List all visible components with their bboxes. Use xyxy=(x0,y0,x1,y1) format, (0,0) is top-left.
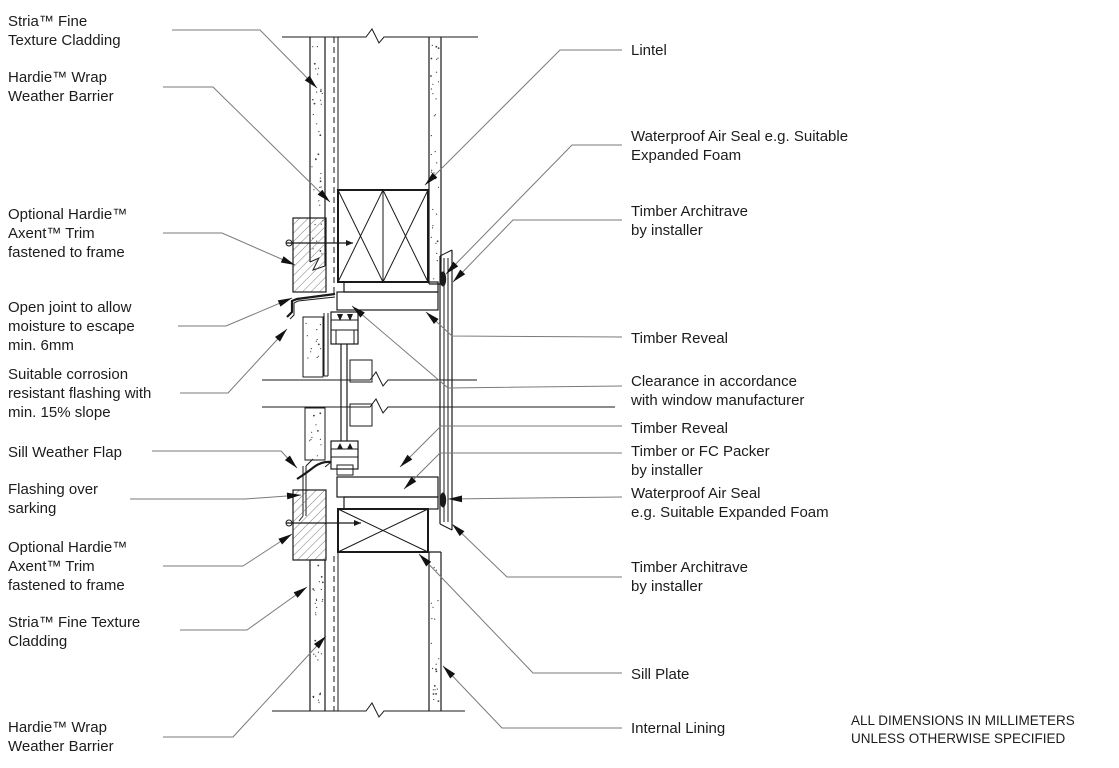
label-hardie-wrap-bottom: Hardie™ Wrap Weather Barrier xyxy=(8,718,228,756)
axent-trim-bottom xyxy=(286,490,361,560)
label-lintel: Lintel xyxy=(631,41,911,60)
detail-drawing-page: Stria™ Fine Texture Cladding Hardie™ Wra… xyxy=(0,0,1119,768)
label-hardie-wrap-top: Hardie™ Wrap Weather Barrier xyxy=(8,68,228,106)
label-sill-plate: Sill Plate xyxy=(631,665,911,684)
leader-fc-packer xyxy=(404,453,622,489)
timber-architrave-strip xyxy=(440,250,452,530)
label-open-joint: Open joint to allow moisture to escape m… xyxy=(8,298,228,355)
glazing-unit xyxy=(341,344,347,441)
head-fc-board xyxy=(303,317,323,377)
window-head-frame xyxy=(331,312,358,344)
upper-wall xyxy=(310,37,441,296)
sill-plate xyxy=(338,509,428,552)
sill-timber-reveal xyxy=(337,477,438,497)
leader-air-seal-sill xyxy=(448,497,622,499)
head-timber-reveal xyxy=(337,292,438,310)
leader-lintel xyxy=(425,50,622,185)
internal-lining-bottom xyxy=(429,552,441,711)
label-stria-cladding-bottom: Stria™ Fine Texture Cladding xyxy=(8,613,228,651)
sill-air-seal xyxy=(440,493,446,508)
break-lines xyxy=(262,29,615,717)
leader-timber-reveal-sill xyxy=(400,426,622,467)
label-timber-reveal-head: Timber Reveal xyxy=(631,329,911,348)
break-line-mid-lower xyxy=(262,399,615,413)
label-air-seal-head: Waterproof Air Seal e.g. Suitable Expand… xyxy=(631,127,911,165)
label-axent-trim-bottom: Optional Hardie™ Axent™ Trim fastened to… xyxy=(8,538,228,595)
sill-weather-flap xyxy=(297,462,331,479)
leader-internal-lining xyxy=(443,666,622,728)
label-stria-cladding-top: Stria™ Fine Texture Cladding xyxy=(8,12,228,50)
internal-lining-top xyxy=(429,37,441,284)
lintel xyxy=(338,190,428,282)
head-packer xyxy=(344,282,438,292)
label-fc-packer: Timber or FC Packer by installer xyxy=(631,442,911,480)
leader-air-seal-head xyxy=(446,145,622,274)
break-line-top xyxy=(282,29,478,43)
glazing-stop-head xyxy=(350,360,372,382)
break-line-mid-upper xyxy=(262,372,477,386)
break-line-bottom xyxy=(272,703,465,717)
leader-timber-reveal-head xyxy=(426,312,622,337)
leader-clearance xyxy=(352,306,622,388)
label-corrosion-flashing: Suitable corrosion resistant flashing wi… xyxy=(8,365,238,422)
axent-trim-top xyxy=(286,218,353,292)
label-sill-weather-flap: Sill Weather Flap xyxy=(8,443,228,462)
label-axent-trim-top: Optional Hardie™ Axent™ Trim fastened to… xyxy=(8,205,228,262)
lower-wall xyxy=(310,552,441,711)
window-sill-frame xyxy=(325,441,358,475)
label-flashing-over-sarking: Flashing over sarking xyxy=(8,480,228,518)
head-air-seal xyxy=(440,272,446,287)
label-architrave-head: Timber Architrave by installer xyxy=(631,202,911,240)
head-flashing-drip-leg xyxy=(324,313,328,376)
sill-fc-board xyxy=(305,408,325,460)
label-timber-reveal-sill: Timber Reveal xyxy=(631,419,911,438)
dimensions-note: ALL DIMENSIONS IN MILLIMETERS UNLESS OTH… xyxy=(851,712,1111,748)
leader-architrave-head xyxy=(453,220,622,282)
sill-packer xyxy=(344,497,438,509)
leader-sill-plate xyxy=(419,554,622,673)
label-air-seal-sill: Waterproof Air Seal e.g. Suitable Expand… xyxy=(631,484,911,522)
leader-architrave-sill xyxy=(452,524,622,577)
label-clearance: Clearance in accordance with window manu… xyxy=(631,372,911,410)
label-architrave-sill: Timber Architrave by installer xyxy=(631,558,911,596)
